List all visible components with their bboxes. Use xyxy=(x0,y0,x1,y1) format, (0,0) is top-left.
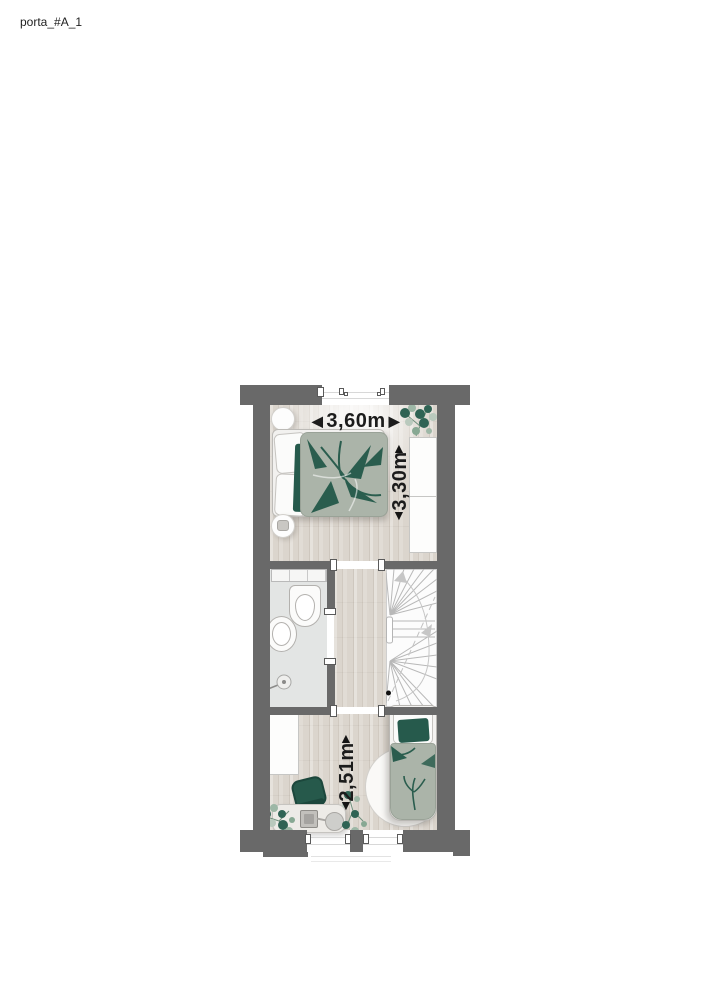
door-jamb xyxy=(363,834,369,844)
interior-wall-a-right xyxy=(380,561,437,569)
toilet-bowl xyxy=(295,594,315,621)
bathroom-wall-upper xyxy=(327,569,335,613)
wall-top-left xyxy=(240,385,322,405)
wardrobe-front-bedroom xyxy=(268,712,299,775)
door-jamb xyxy=(305,834,311,844)
window-hinge-marker xyxy=(344,392,348,396)
nightstand-top xyxy=(271,407,295,431)
door-jamb xyxy=(330,705,337,717)
double-bed xyxy=(272,429,385,517)
toilet xyxy=(289,585,321,627)
dimension-depth-back-bedroom: 3,30m xyxy=(370,451,430,511)
window-jamb xyxy=(317,387,324,397)
wall-bottom-pillar xyxy=(350,830,363,852)
door-jamb xyxy=(378,705,385,717)
single-bed xyxy=(389,705,437,821)
exterior-step-line xyxy=(311,856,391,857)
window-sill-line xyxy=(322,398,389,399)
bathroom-wall-lower xyxy=(327,662,335,707)
dimension-value: 3,60m xyxy=(326,410,385,433)
interior-wall-a-left xyxy=(270,561,335,569)
wall-bottom-right xyxy=(403,830,470,852)
door-jamb xyxy=(397,834,403,844)
interior-wall-b-left xyxy=(270,707,335,715)
duvet-leaf-pattern xyxy=(391,744,436,820)
plant-corner xyxy=(396,400,438,444)
window-hinge-marker xyxy=(377,392,381,396)
wall-bottom-step-left xyxy=(263,852,308,857)
door-sill-line xyxy=(307,837,350,838)
staircase xyxy=(386,569,437,707)
green-cushion xyxy=(397,718,430,743)
bathroom-shelf xyxy=(271,569,327,582)
hallway-floor xyxy=(334,569,386,707)
laptop-screen xyxy=(304,814,314,824)
sink xyxy=(266,616,297,652)
down-arrow-icon: ▼ xyxy=(339,798,353,812)
door-sill-line xyxy=(307,844,350,845)
floor-plan-sheet: porta_#A_1 xyxy=(0,0,707,1000)
interior-wall-b-right xyxy=(380,707,437,715)
door-jamb xyxy=(330,559,337,571)
duvet xyxy=(390,743,436,820)
exterior-step-line xyxy=(311,861,391,862)
wall-right xyxy=(437,405,455,830)
sink-basin xyxy=(272,622,291,646)
wall-bottom-step-right xyxy=(453,852,470,856)
door-jamb xyxy=(345,834,351,844)
nightstand-bottom xyxy=(271,514,295,538)
left-arrow-icon: ◀ xyxy=(312,413,323,430)
wall-top-right xyxy=(389,385,470,405)
tray xyxy=(277,520,289,531)
dimension-value: 3,30m xyxy=(389,451,412,510)
floor-plan: ◀ 3,60m ▶ ▲ 3,30m ▼ xyxy=(0,0,707,1000)
wall-left xyxy=(253,405,270,830)
dimension-width-back-bedroom: ◀ 3,60m ▶ xyxy=(312,410,400,432)
down-arrow-icon: ▼ xyxy=(392,508,406,522)
door-jamb xyxy=(378,559,385,571)
dimension-value: 2,51m xyxy=(336,742,359,801)
dimension-depth-front-bedroom: 2,51m xyxy=(317,742,377,802)
door-jamb xyxy=(324,608,336,615)
door-jamb xyxy=(324,658,336,665)
wall-bottom-left xyxy=(240,830,307,852)
door-sill-line xyxy=(363,844,403,845)
right-arrow-icon: ▶ xyxy=(389,413,400,430)
